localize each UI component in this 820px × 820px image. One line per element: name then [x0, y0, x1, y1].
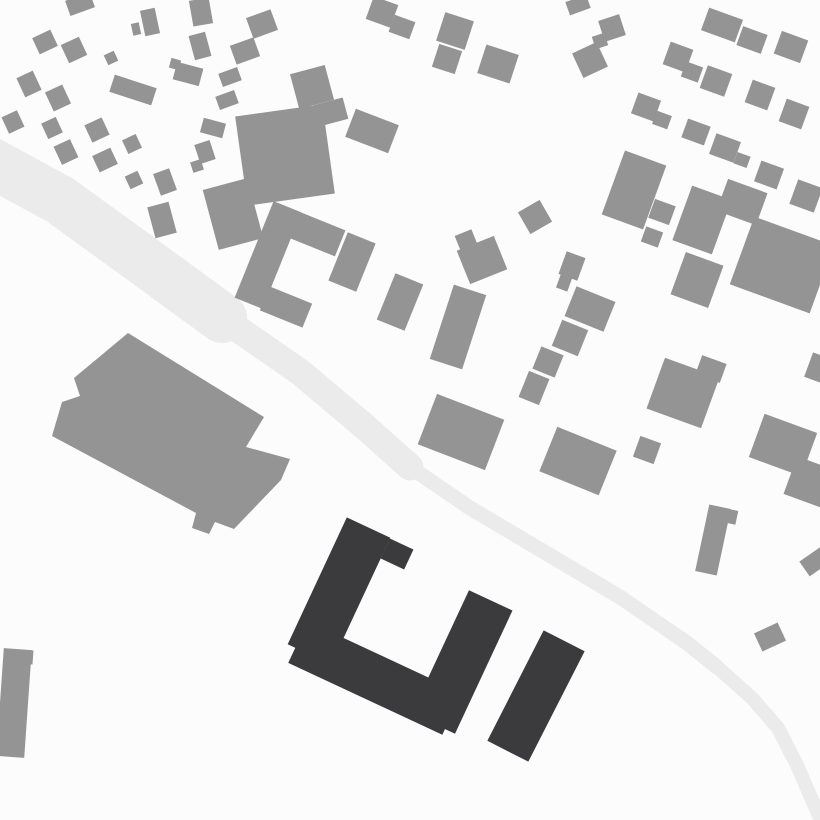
building [140, 8, 160, 37]
building [200, 118, 226, 138]
building [289, 212, 346, 257]
building [345, 109, 399, 153]
building [430, 285, 486, 370]
building [518, 200, 552, 234]
building [104, 51, 119, 66]
building [730, 217, 820, 314]
building [0, 648, 32, 758]
building [418, 394, 505, 470]
building [41, 117, 63, 139]
building [246, 9, 278, 39]
building [122, 134, 142, 154]
building [19, 650, 34, 665]
building [125, 171, 144, 190]
building [519, 371, 550, 405]
building [701, 8, 743, 43]
building [789, 179, 820, 212]
building [700, 65, 733, 96]
building [754, 622, 786, 651]
highlighted-building-part [487, 630, 584, 761]
building [804, 352, 820, 383]
building [779, 99, 810, 130]
building [641, 226, 663, 247]
building [153, 168, 177, 195]
site-plan-map [0, 0, 820, 820]
building [671, 252, 724, 308]
building [477, 44, 519, 83]
building [84, 117, 109, 142]
building [681, 118, 710, 145]
building [532, 346, 563, 377]
building [54, 139, 79, 165]
road-segment [0, 162, 222, 318]
building [572, 42, 608, 78]
building [432, 44, 462, 74]
building [215, 90, 239, 110]
building [16, 71, 41, 98]
road-segment [222, 318, 410, 467]
building [235, 104, 335, 205]
building [1, 110, 24, 133]
highlighted-building-part [412, 590, 513, 734]
building [109, 75, 156, 106]
building [218, 67, 242, 87]
building [436, 12, 474, 50]
building [754, 161, 784, 190]
building [736, 26, 767, 54]
large-building [52, 333, 290, 534]
building [552, 320, 588, 356]
building [565, 0, 590, 15]
building [539, 427, 616, 495]
building [633, 436, 661, 464]
building [45, 84, 71, 111]
building [32, 30, 58, 55]
building [189, 0, 213, 27]
building [147, 202, 177, 239]
road-segment [717, 667, 820, 820]
map-canvas [0, 0, 820, 820]
building [774, 31, 809, 63]
building [65, 0, 95, 16]
building [377, 273, 424, 331]
building [131, 22, 141, 35]
building [189, 32, 212, 61]
building [61, 37, 88, 64]
building [260, 286, 312, 327]
building [230, 37, 260, 64]
building [92, 148, 118, 173]
building [799, 546, 820, 577]
building [745, 80, 776, 111]
